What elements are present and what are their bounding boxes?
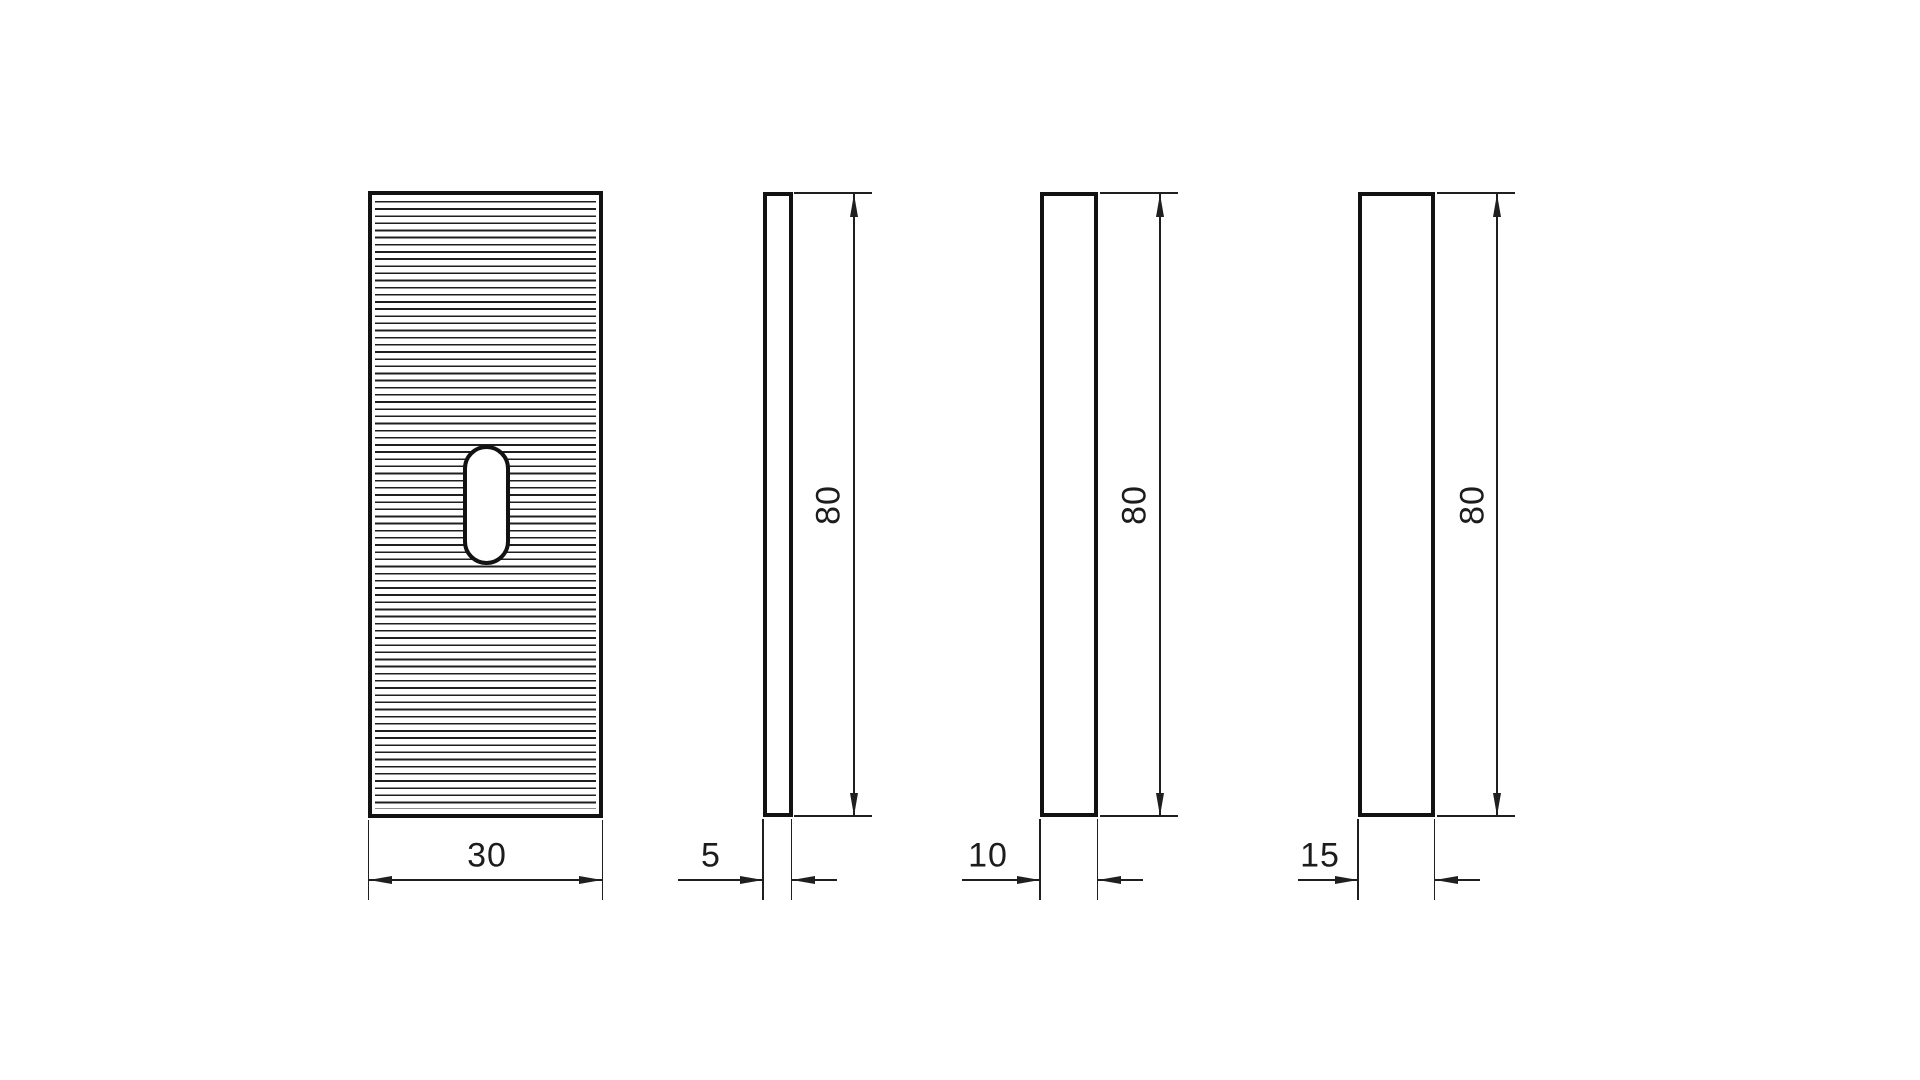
arrowhead-left-icon	[1435, 876, 1458, 884]
arrowhead-right-icon	[579, 876, 602, 884]
dimension-label: 5	[701, 837, 721, 876]
side-view-10-outline	[1040, 192, 1098, 817]
extension-line	[1039, 819, 1041, 900]
width-dimension-10: 10	[0, 0, 1920, 1080]
extension-line	[1097, 819, 1099, 900]
dimension-line	[678, 879, 763, 881]
extension-line	[794, 815, 872, 817]
dimension-line	[1159, 193, 1161, 816]
arrowhead-down-icon	[1493, 793, 1501, 816]
dimension-line	[1435, 879, 1480, 881]
width-dimension-5: 5	[0, 0, 1920, 1080]
dimension-label: 80	[1116, 485, 1155, 525]
arrowhead-right-icon	[740, 876, 763, 884]
arrowhead-down-icon	[850, 793, 858, 816]
arrowhead-left-icon	[792, 876, 815, 884]
arrowhead-up-icon	[1156, 194, 1164, 217]
extension-line	[762, 819, 764, 900]
extension-line	[794, 192, 872, 194]
dimension-line	[792, 879, 837, 881]
dimension-label: 80	[1454, 485, 1493, 525]
extension-line	[1434, 819, 1436, 900]
dimension-label: 10	[968, 837, 1008, 876]
slot-hole	[463, 445, 510, 565]
dimension-line	[369, 879, 602, 881]
dimension-line	[1298, 879, 1358, 881]
extension-line	[602, 820, 604, 900]
arrowhead-left-icon	[369, 876, 392, 884]
extension-line	[1100, 815, 1178, 817]
dimension-label: 80	[810, 485, 849, 525]
extension-line	[1357, 819, 1359, 900]
arrowhead-down-icon	[1156, 793, 1164, 816]
dimension-label: 15	[1300, 837, 1340, 876]
dimension-line	[962, 879, 1040, 881]
side-view-15-outline	[1358, 192, 1435, 817]
arrowhead-up-icon	[850, 194, 858, 217]
dimension-label: 30	[467, 837, 507, 876]
arrowhead-right-icon	[1335, 876, 1358, 884]
arrowhead-right-icon	[1017, 876, 1040, 884]
arrowhead-up-icon	[1493, 194, 1501, 217]
width-dimension-15: 15	[0, 0, 1920, 1080]
dimension-line	[1496, 193, 1498, 816]
technical-drawing-page: 30 80 5 80 10	[0, 0, 1920, 1080]
height-dimension-80-view2: 80	[0, 0, 1920, 1080]
extension-line	[1100, 192, 1178, 194]
extension-line	[791, 819, 793, 900]
height-dimension-80-view3: 80	[0, 0, 1920, 1080]
dimension-line	[1098, 879, 1143, 881]
front-view-outline	[368, 191, 603, 818]
side-view-5-outline	[763, 192, 793, 817]
height-dimension-80-view4: 80	[0, 0, 1920, 1080]
extension-line	[1437, 192, 1515, 194]
extension-line	[1437, 815, 1515, 817]
arrowhead-left-icon	[1098, 876, 1121, 884]
extension-line	[368, 820, 370, 900]
width-dimension-30: 30	[0, 0, 1920, 1080]
dimension-line	[853, 193, 855, 816]
